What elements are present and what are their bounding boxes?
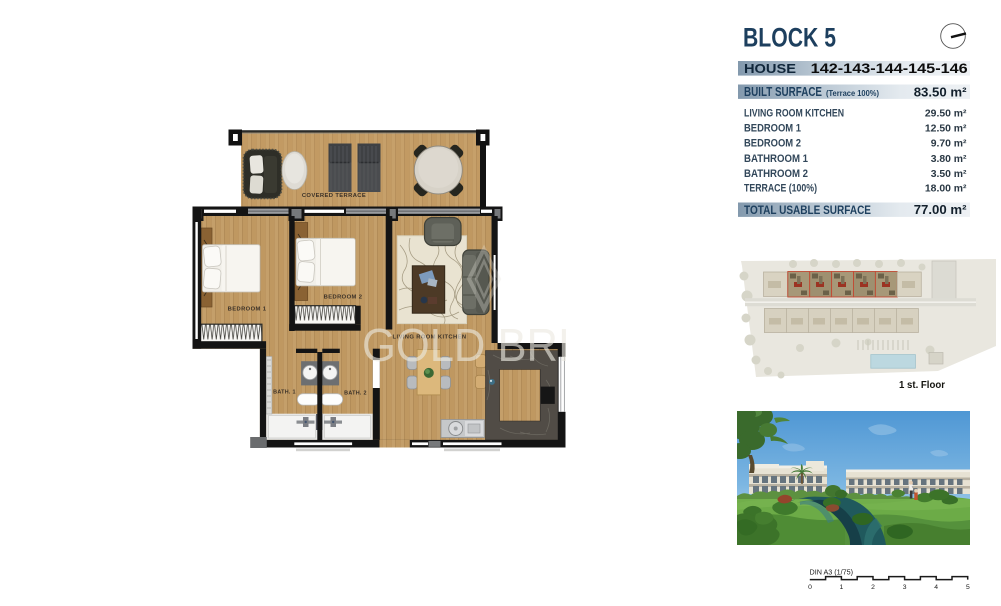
svg-text:142-143-144-145-146: 142-143-144-145-146 [811,61,968,77]
svg-text:BATHROOM 2: BATHROOM 2 [744,168,808,180]
svg-text:BEDROOM 2: BEDROOM 2 [324,295,363,301]
svg-text:2: 2 [871,584,875,591]
svg-text:9.70 m²: 9.70 m² [931,139,967,150]
svg-text:3.80 m²: 3.80 m² [931,154,967,165]
svg-text:(Terrace 100%): (Terrace 100%) [826,89,879,98]
svg-text:77.00 m²: 77.00 m² [914,202,967,217]
svg-text:BATH. 2: BATH. 2 [344,391,367,397]
svg-text:BUILT SURFACE: BUILT SURFACE [744,85,822,99]
svg-text:BEDROOM 2: BEDROOM 2 [744,138,801,150]
svg-text:BATH. 1: BATH. 1 [273,390,296,396]
svg-text:BEDROOM 1: BEDROOM 1 [744,123,801,135]
svg-text:18.00 m²: 18.00 m² [925,184,967,195]
svg-text:COVERED TERRACE: COVERED TERRACE [302,193,366,199]
svg-text:BATHROOM 1: BATHROOM 1 [744,153,808,165]
svg-text:DIN A3 (1/75): DIN A3 (1/75) [810,568,854,577]
svg-text:TOTAL USABLE SURFACE: TOTAL USABLE SURFACE [744,203,871,217]
svg-text:BEDROOM 1: BEDROOM 1 [228,307,267,313]
svg-text:29.50 m²: 29.50 m² [925,108,967,119]
svg-text:GOLD BRI: GOLD BRI [362,319,570,371]
svg-text:0: 0 [808,584,812,591]
svg-text:HOUSE: HOUSE [744,61,796,76]
svg-text:1 st. Floor: 1 st. Floor [899,380,945,391]
svg-text:LIVING ROOM KITCHEN: LIVING ROOM KITCHEN [744,107,844,119]
svg-text:3: 3 [903,584,907,591]
svg-text:1: 1 [840,584,844,591]
svg-text:12.50 m²: 12.50 m² [925,124,967,135]
svg-text:5: 5 [966,584,970,591]
svg-text:83.50 m²: 83.50 m² [914,84,967,99]
svg-text:4: 4 [934,584,938,591]
svg-text:3.50 m²: 3.50 m² [931,169,967,180]
svg-text:TERRACE (100%): TERRACE (100%) [744,183,817,195]
svg-text:BLOCK 5: BLOCK 5 [743,23,836,53]
